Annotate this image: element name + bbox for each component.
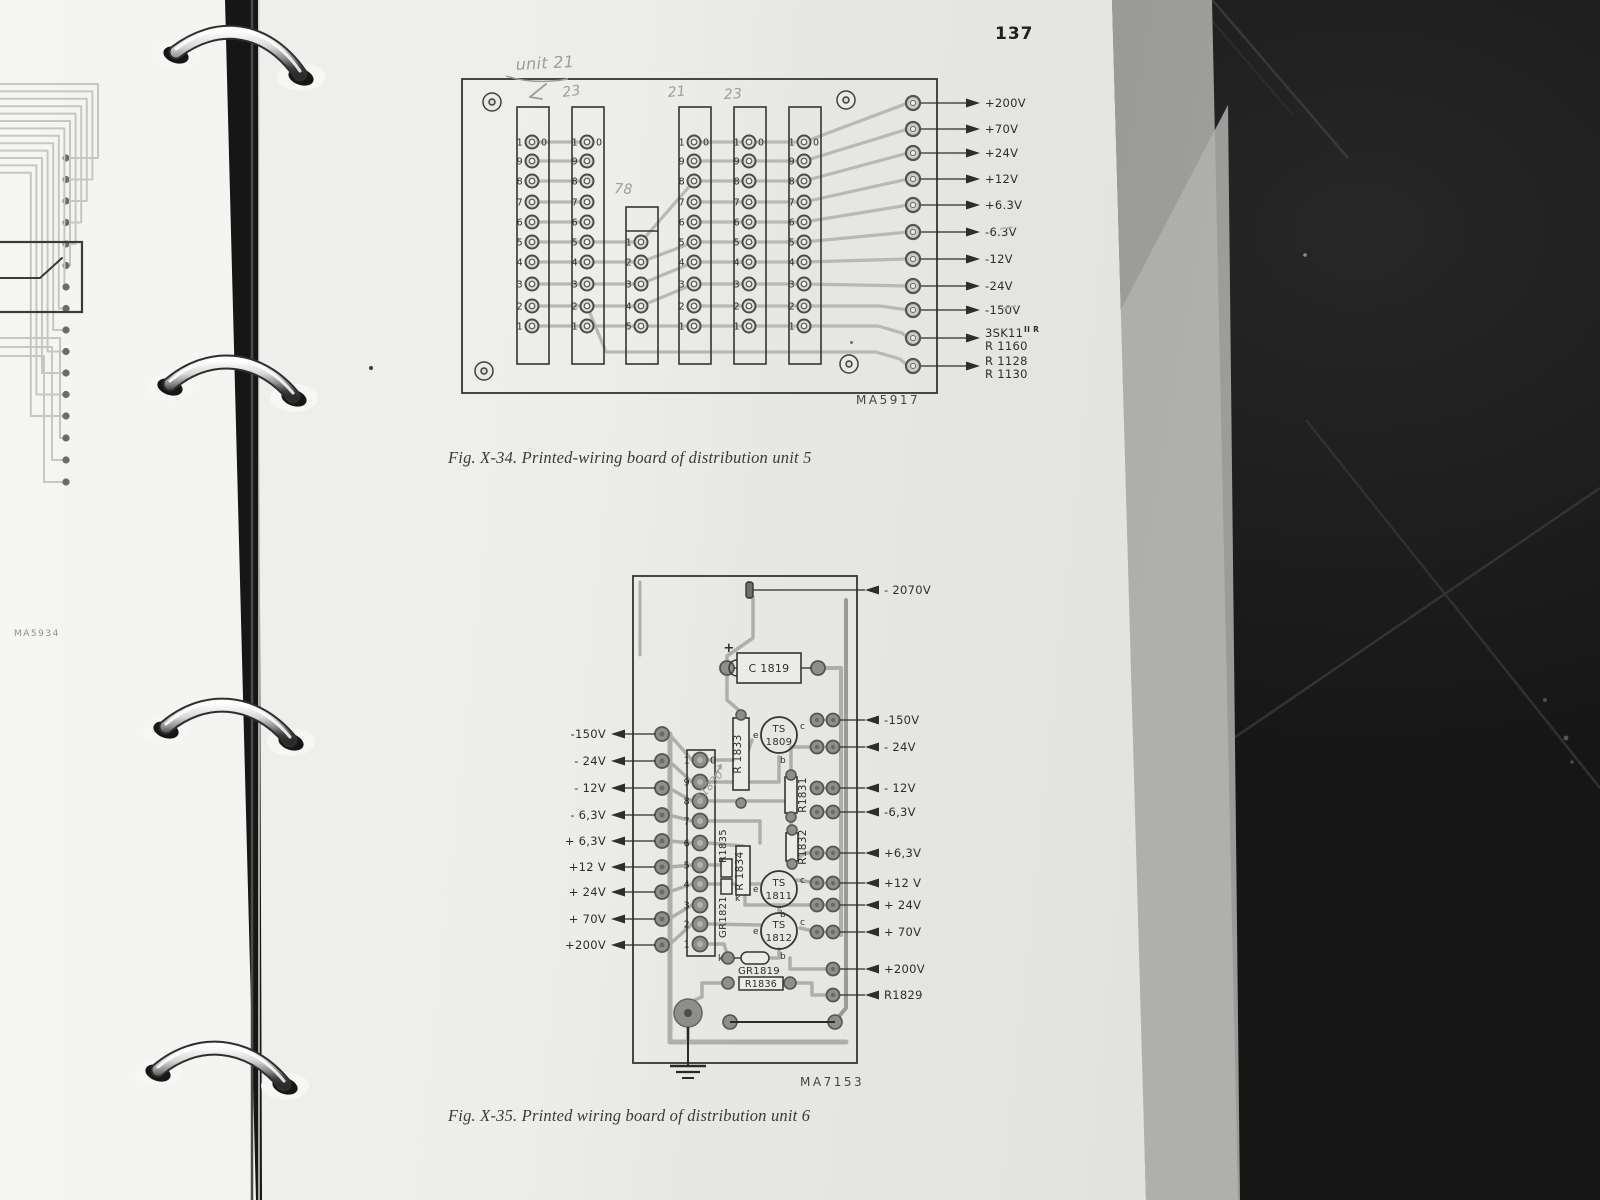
- arrowhead-icon: [611, 888, 625, 897]
- solder-pad: [911, 177, 916, 182]
- voltage-label: R1829: [884, 988, 923, 1002]
- handwritten-unit: unit 21: [515, 52, 574, 74]
- solder-pad: [638, 323, 644, 329]
- output-terminal: -6,3V: [811, 805, 916, 819]
- pin-number: 3: [679, 280, 685, 291]
- component-label: TS: [771, 878, 785, 889]
- binder-rings: [100, 0, 340, 1200]
- solder-pad: [691, 219, 697, 225]
- arrowhead-icon: [966, 282, 980, 291]
- solder-pad: [746, 281, 752, 287]
- output-terminal: + 70V: [811, 925, 922, 939]
- mounting-hole: [846, 361, 852, 367]
- output-terminal: + 6,3V: [565, 834, 669, 848]
- pin-number: 6: [572, 218, 578, 229]
- solder-pad: [815, 718, 819, 722]
- component-label: GR1821: [718, 896, 729, 938]
- solder-pad: [784, 977, 796, 989]
- solder-pad: [584, 158, 590, 164]
- solder-pad: [660, 890, 665, 895]
- output-terminal: + 24V: [569, 885, 669, 899]
- solder-pad: [815, 903, 819, 907]
- solder-pad: [911, 101, 916, 106]
- solder-pad: [911, 336, 916, 341]
- output-terminal: +200V: [906, 96, 1026, 110]
- arrowhead-icon: [865, 784, 879, 793]
- dust-speck: [1303, 253, 1307, 257]
- arrowhead-icon: [966, 175, 980, 184]
- pin-number: 8: [679, 177, 685, 188]
- emitter-mark: e: [753, 885, 759, 895]
- arrowhead-icon: [966, 362, 980, 371]
- solder-pad: [529, 178, 535, 184]
- voltage-label: + 24V: [884, 898, 921, 912]
- output-terminal: -12V: [906, 252, 1013, 266]
- board-code: MA7153: [800, 1075, 864, 1089]
- voltage-label: + 70V: [569, 912, 606, 926]
- arrowhead-icon: [966, 228, 980, 237]
- solder-pad: [746, 219, 752, 225]
- solder-pad: [786, 770, 796, 780]
- solder-pad: [638, 239, 644, 245]
- component-label: R 1833: [732, 734, 744, 773]
- cathode-mark: k: [718, 954, 724, 964]
- collector-mark: c: [800, 722, 805, 732]
- copper-trace: [804, 326, 908, 338]
- pin-number: 0: [813, 138, 819, 149]
- pin-number: 2: [517, 302, 523, 313]
- mounting-hole: [489, 99, 495, 105]
- solder-pad: [62, 369, 69, 376]
- handwritten-23: 23: [723, 86, 742, 103]
- arrowhead-icon: [966, 99, 980, 108]
- solder-pad: [660, 865, 665, 870]
- voltage-label: -6,3V: [884, 805, 916, 819]
- voltage-label: + 6,3V: [565, 834, 606, 848]
- pin-number: 2: [572, 302, 578, 313]
- solder-pad: [691, 259, 697, 265]
- handwritten-78: 78: [614, 181, 633, 198]
- left-output-terminals: -150V- 24V- 12V- 6,3V+ 6,3V+12 V+ 24V+ 7…: [565, 727, 669, 952]
- solder-pad: [697, 818, 703, 824]
- solder-pad: [815, 881, 819, 885]
- copper-trace: [804, 306, 908, 310]
- solder-pad: [584, 323, 590, 329]
- component-label: R1832: [797, 829, 809, 865]
- solder-pad: [584, 303, 590, 309]
- voltage-label: +6,3V: [884, 846, 921, 860]
- ground-symbol: [670, 1027, 706, 1078]
- solder-pad: [660, 813, 665, 818]
- output-terminal: -150V: [906, 303, 1020, 317]
- board-code: MA5917: [856, 393, 920, 407]
- capacitor-c1819: C 1819+: [720, 641, 825, 683]
- pin-number: 3: [734, 280, 740, 291]
- copper-trace: [804, 205, 908, 222]
- solder-pad: [529, 303, 535, 309]
- solder-pad: [746, 199, 752, 205]
- solder-pad: [638, 259, 644, 265]
- voltage-label: + 70V: [884, 925, 921, 939]
- copper-trace: [804, 179, 908, 202]
- solder-pad: [529, 239, 535, 245]
- arrowhead-icon: [611, 941, 625, 950]
- solder-pad: [62, 434, 69, 441]
- solder-pad: [697, 862, 703, 868]
- pin-number: 1: [789, 138, 795, 149]
- solder-pad: [815, 930, 819, 934]
- pin-number: 2: [684, 920, 690, 931]
- handwritten-23: 23: [561, 83, 581, 101]
- binder-ring: [152, 29, 325, 91]
- arrowhead-icon: [966, 149, 980, 158]
- solder-pad: [801, 303, 807, 309]
- solder-pad: [911, 284, 916, 289]
- solder-pad: [831, 718, 835, 722]
- pin-number: 9: [572, 157, 578, 168]
- output-terminal: +6,3V: [811, 846, 922, 860]
- output-terminal: +12 V: [811, 876, 922, 890]
- pin-number: 1: [789, 322, 795, 333]
- pin-number: 7: [789, 198, 795, 209]
- pin-number: 5: [684, 861, 690, 872]
- pin-number: 1: [684, 756, 690, 767]
- pin-number: 1: [626, 238, 632, 249]
- voltage-label: +6.3V: [985, 198, 1022, 212]
- mounting-hole: [481, 368, 487, 374]
- copper-trace: [0, 338, 69, 438]
- solder-pad: [736, 798, 746, 808]
- arrowhead-icon: [611, 784, 625, 793]
- collector-mark: c: [800, 918, 805, 928]
- voltage-label: R 1130: [985, 367, 1028, 381]
- solder-pad: [660, 839, 665, 844]
- pin-number: 4: [684, 880, 690, 891]
- photo-scene: MA5934 137 10987654321109876543211098765…: [0, 0, 1600, 1200]
- voltage-label: +12V: [985, 172, 1018, 186]
- solder-pad: [746, 303, 752, 309]
- component-label: C 1819: [749, 662, 790, 675]
- solder-pad: [746, 158, 752, 164]
- output-terminal: - 24V: [574, 754, 669, 768]
- collector-mark: c: [800, 876, 805, 886]
- solder-pad: [697, 757, 703, 763]
- pin-number: 9: [789, 157, 795, 168]
- solder-pad: [801, 239, 807, 245]
- pin-number: 3: [684, 901, 690, 912]
- voltage-label: -24V: [985, 279, 1013, 293]
- pin-number: 8: [572, 177, 578, 188]
- small-connector: 12345: [626, 207, 658, 364]
- solder-pad: [691, 281, 697, 287]
- pin-number: 1: [517, 322, 523, 333]
- solder-pad: [746, 139, 752, 145]
- solder-pad: [815, 810, 819, 814]
- transistor-ts1809: TS1809ebc: [753, 717, 805, 766]
- pin-number: 6: [734, 218, 740, 229]
- pin-number: 5: [679, 238, 685, 249]
- solder-pad: [831, 810, 835, 814]
- fig35-board-diagram: - 2070V10987654321-150V- 24V- 12V- 6,3V+…: [535, 548, 945, 1098]
- voltage-label: - 2070V: [884, 583, 931, 597]
- voltage-label: R 1128: [985, 354, 1028, 368]
- dust-speck: [1564, 736, 1569, 741]
- emitter-mark: e: [753, 927, 759, 937]
- solder-pad: [831, 881, 835, 885]
- solder-pad: [746, 259, 752, 265]
- solder-pad: [722, 952, 734, 964]
- copper-trace: [804, 259, 908, 262]
- pin-number: 0: [596, 138, 602, 149]
- solder-pad: [584, 219, 590, 225]
- pin-number: 4: [517, 258, 523, 269]
- output-terminal: R1829: [827, 988, 923, 1002]
- output-terminals: +200V+70V+24V+12V+6.3V-6.3V-12V-24V-150V…: [906, 96, 1039, 381]
- pin-number: 5: [517, 238, 523, 249]
- voltage-label: + 24V: [569, 885, 606, 899]
- pin-number: 6: [684, 839, 690, 850]
- output-terminal: -6.3V: [906, 225, 1017, 239]
- voltage-label: +24V: [985, 146, 1018, 160]
- arrowhead-icon: [966, 255, 980, 264]
- solder-pad: [831, 993, 835, 997]
- pin-number: 5: [626, 322, 632, 333]
- solder-pad: [831, 786, 835, 790]
- solder-pad: [831, 903, 835, 907]
- copper-trace: [0, 356, 69, 482]
- pencil-checkmark: [530, 84, 546, 99]
- solder-pad: [691, 199, 697, 205]
- output-terminal: -24V: [906, 279, 1013, 293]
- solder-pad: [660, 786, 665, 791]
- solder-pad: [638, 281, 644, 287]
- pin-number: 1: [517, 138, 523, 149]
- component-label: R1831: [797, 777, 809, 813]
- solder-pad: [801, 178, 807, 184]
- arrowhead-icon: [865, 965, 879, 974]
- pin-number: 3: [517, 280, 523, 291]
- arrowhead-icon: [865, 743, 879, 752]
- solder-pad: [911, 151, 916, 156]
- pin-number: 7: [517, 198, 523, 209]
- solder-pad: [638, 303, 644, 309]
- seam-line: [1208, 0, 1348, 158]
- solder-pad: [720, 661, 734, 675]
- pin-number: 1: [572, 322, 578, 333]
- mounting-hole: [843, 97, 849, 103]
- pin-number: 4: [734, 258, 740, 269]
- solder-pad: [911, 257, 916, 262]
- cathode-mark: k: [735, 894, 741, 904]
- arrowhead-icon: [865, 879, 879, 888]
- arrowhead-icon: [611, 863, 625, 872]
- pin-number: 1: [734, 322, 740, 333]
- solder-pad: [736, 710, 746, 720]
- arrowhead-icon: [966, 334, 980, 343]
- pin-number: 7: [679, 198, 685, 209]
- solder-pad: [660, 917, 665, 922]
- right-output-terminals: -150V- 24V- 12V-6,3V+6,3V+12 V+ 24V+ 70V…: [811, 713, 925, 1002]
- output-terminal: +6.3V: [906, 198, 1022, 212]
- arrowhead-icon: [611, 915, 625, 924]
- arrowhead-icon: [611, 730, 625, 739]
- voltage-label: - 12V: [574, 781, 606, 795]
- solder-pad: [62, 391, 69, 398]
- solder-pad: [529, 219, 535, 225]
- ring-group: [134, 0, 340, 1200]
- solder-pad: [62, 478, 69, 485]
- solder-pad: [722, 977, 734, 989]
- solder-pad: [660, 732, 665, 737]
- voltage-label: +200V: [985, 96, 1026, 110]
- output-terminal: +24V: [906, 146, 1018, 160]
- solder-pad: [529, 199, 535, 205]
- copper-trace: [804, 284, 908, 286]
- pin-number: 9: [684, 778, 690, 789]
- pin-number: 1: [684, 940, 690, 951]
- solder-pad: [787, 859, 797, 869]
- emitter-mark: e: [753, 731, 759, 741]
- copper-trace: [641, 284, 694, 306]
- output-terminal: - 6,3V: [570, 808, 669, 822]
- binder-ring: [142, 702, 315, 756]
- pin-number: 8: [789, 177, 795, 188]
- dust-speck: [1570, 760, 1574, 764]
- pin-number: 7: [684, 817, 690, 828]
- solder-pad: [801, 323, 807, 329]
- arrowhead-icon: [865, 849, 879, 858]
- arrowhead-icon: [611, 837, 625, 846]
- voltage-label: - 24V: [574, 754, 606, 768]
- seam-line: [1306, 420, 1600, 788]
- solder-pad: [911, 230, 916, 235]
- arrowhead-icon: [865, 928, 879, 937]
- voltage-label: +200V: [565, 938, 606, 952]
- output-terminal: 3SK11R 1160II R: [906, 325, 1039, 353]
- base-mark: b: [780, 952, 786, 962]
- solder-pad: [584, 199, 590, 205]
- solder-pad: [746, 323, 752, 329]
- diode-gr1819: [741, 952, 769, 964]
- voltage-label: - 12V: [884, 781, 916, 795]
- solder-pad: [691, 239, 697, 245]
- solder-pad: [787, 825, 797, 835]
- superscript-label: II R: [1024, 325, 1039, 334]
- output-terminal: +200V: [565, 938, 669, 952]
- pin-number: 4: [572, 258, 578, 269]
- diode-gr1821: [721, 879, 732, 894]
- handwritten-notes: unit 2123212378: [506, 52, 743, 198]
- solder-pad: [831, 930, 835, 934]
- arrowhead-icon: [966, 306, 980, 315]
- voltage-label: 3SK11: [985, 326, 1023, 340]
- solder-pad: [62, 283, 69, 290]
- pin-number: 4: [789, 258, 795, 269]
- pin-number: 4: [626, 302, 632, 313]
- solder-pad: [660, 943, 665, 948]
- pin-number: 1: [679, 322, 685, 333]
- arrowhead-icon: [865, 901, 879, 910]
- solder-pad: [691, 158, 697, 164]
- pin-number: 3: [626, 280, 632, 291]
- arrowhead-icon: [611, 811, 625, 820]
- pin-number: 6: [517, 218, 523, 229]
- arrowhead-icon: [966, 125, 980, 134]
- voltage-label: - 24V: [884, 740, 916, 754]
- solder-pad: [62, 326, 69, 333]
- solder-pad: [811, 661, 825, 675]
- binder-ring: [134, 1045, 309, 1100]
- solder-pad: [815, 786, 819, 790]
- pin-number: 0: [710, 756, 716, 767]
- pin-number: 9: [734, 157, 740, 168]
- pin-number: 9: [679, 157, 685, 168]
- pin-number: 5: [734, 238, 740, 249]
- solder-pad: [691, 323, 697, 329]
- voltage-label: -150V: [884, 713, 919, 727]
- component-label: TS: [771, 724, 785, 735]
- solder-pad: [911, 127, 916, 132]
- arrowhead-icon: [966, 201, 980, 210]
- solder-pad: [697, 881, 703, 887]
- copper-trace: [641, 242, 694, 262]
- output-terminal: -150V: [571, 727, 669, 741]
- handwritten-21: 21: [667, 83, 687, 101]
- copper-trace: [818, 668, 841, 935]
- pin-number: 7: [572, 198, 578, 209]
- solder-pad: [697, 840, 703, 846]
- solder-pad: [529, 323, 535, 329]
- output-terminal: -150V: [811, 713, 920, 727]
- output-terminal: - 12V: [811, 781, 916, 795]
- solder-pad: [801, 139, 807, 145]
- pin-number: 8: [734, 177, 740, 188]
- solder-pad: [62, 348, 69, 355]
- solder-pad: [584, 139, 590, 145]
- voltage-label: -12V: [985, 252, 1013, 266]
- solder-pad: [801, 259, 807, 265]
- arrowhead-icon: [865, 808, 879, 817]
- seam-line: [1228, 488, 1600, 742]
- page-number: 137: [995, 24, 1034, 44]
- large-pad-center: [684, 1009, 692, 1017]
- solder-pad: [660, 759, 665, 764]
- pin-number: 7: [734, 198, 740, 209]
- solder-pad: [746, 239, 752, 245]
- solder-pad: [691, 303, 697, 309]
- solder-pad: [529, 139, 535, 145]
- solder-pad: [584, 178, 590, 184]
- pin-number: 4: [679, 258, 685, 269]
- pin-number: 8: [517, 177, 523, 188]
- solder-pad: [697, 941, 703, 947]
- solder-pad: [584, 281, 590, 287]
- output-terminal: - 24V: [811, 740, 916, 754]
- arrowhead-icon: [865, 716, 879, 725]
- copper-trace: [0, 347, 69, 460]
- pin-number: 5: [572, 238, 578, 249]
- pin-number: 2: [679, 302, 685, 313]
- output-terminal: +200V: [827, 962, 925, 976]
- component-label: 1809: [766, 737, 793, 748]
- solder-pad: [691, 178, 697, 184]
- dust-speck: [1543, 698, 1547, 702]
- pin-number: 3: [572, 280, 578, 291]
- left-board-code: MA5934: [14, 629, 60, 639]
- voltage-label: -150V: [985, 303, 1020, 317]
- solder-pad: [911, 308, 916, 313]
- solder-pad: [746, 178, 752, 184]
